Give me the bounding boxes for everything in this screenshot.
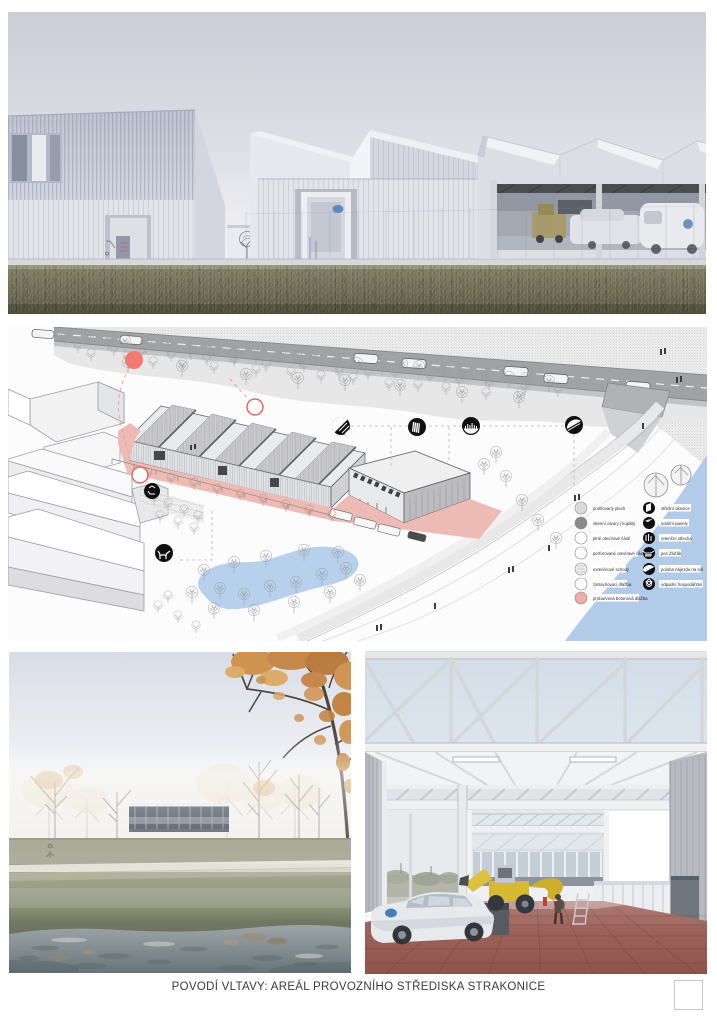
- svg-text:probarvená betonová dlažba: probarvená betonová dlažba: [593, 596, 648, 601]
- svg-text:střešní okenice: střešní okenice: [661, 506, 691, 511]
- svg-text:odpadní hospodářství: odpadní hospodářství: [661, 582, 703, 587]
- svg-text:solární panely: solární panely: [661, 521, 689, 526]
- svg-text:perforované otevíravé části: perforované otevíravé části: [593, 551, 645, 556]
- svg-text:exteriérové schody: exteriérové schody: [593, 567, 630, 572]
- svg-text:retenční střecha: retenční střecha: [661, 536, 692, 541]
- svg-text:plné otevíravé části: plné otevíravé části: [593, 536, 630, 541]
- svg-text:zatravňovací dlažba: zatravňovací dlažba: [593, 582, 632, 587]
- svg-text:okenní otvory | kopility: okenní otvory | kopility: [593, 521, 636, 526]
- svg-text:profilovaný plech: profilovaný plech: [593, 506, 626, 511]
- svg-text:pes Žluťák: pes Žluťák: [661, 551, 682, 556]
- svg-text:poloha nájezdu na sál: poloha nájezdu na sál: [661, 567, 703, 572]
